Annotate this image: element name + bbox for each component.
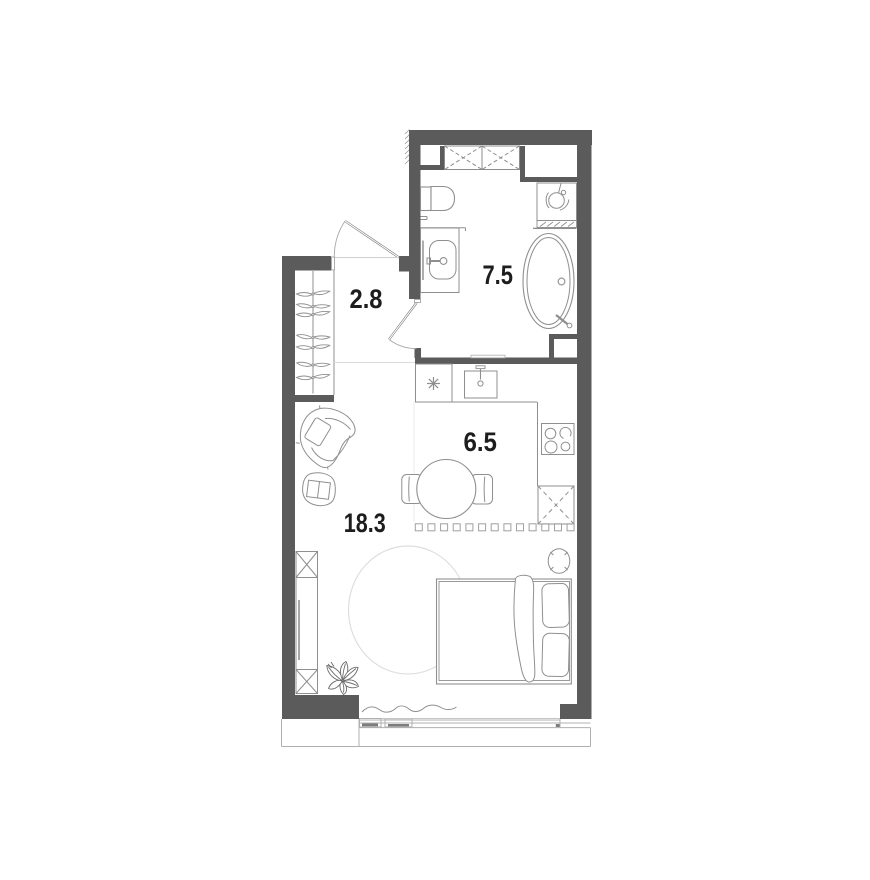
svg-text:6.5: 6.5 <box>463 427 497 457</box>
svg-text:2.8: 2.8 <box>350 284 383 314</box>
svg-text:18.3: 18.3 <box>344 508 386 538</box>
svg-text:7.5: 7.5 <box>482 260 513 290</box>
